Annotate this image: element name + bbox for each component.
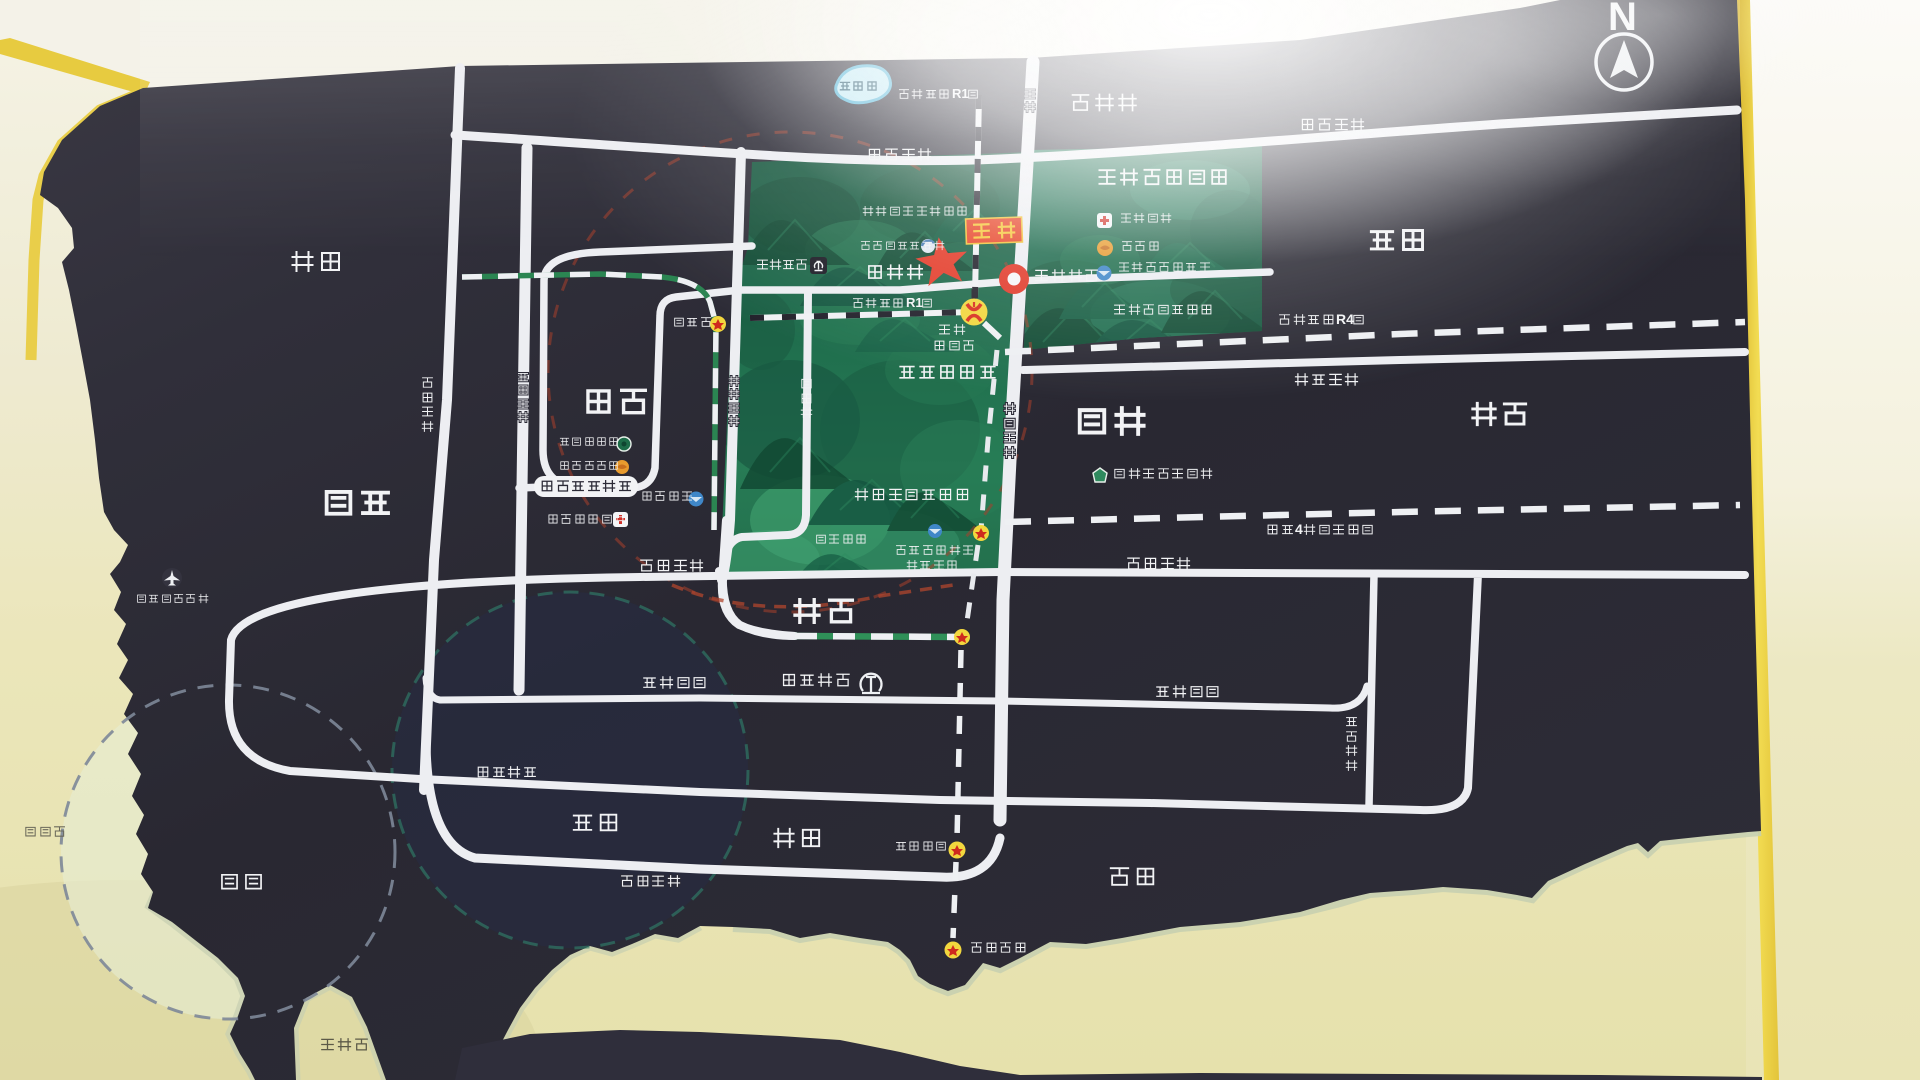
svg-text:4: 4 [1295, 521, 1303, 537]
